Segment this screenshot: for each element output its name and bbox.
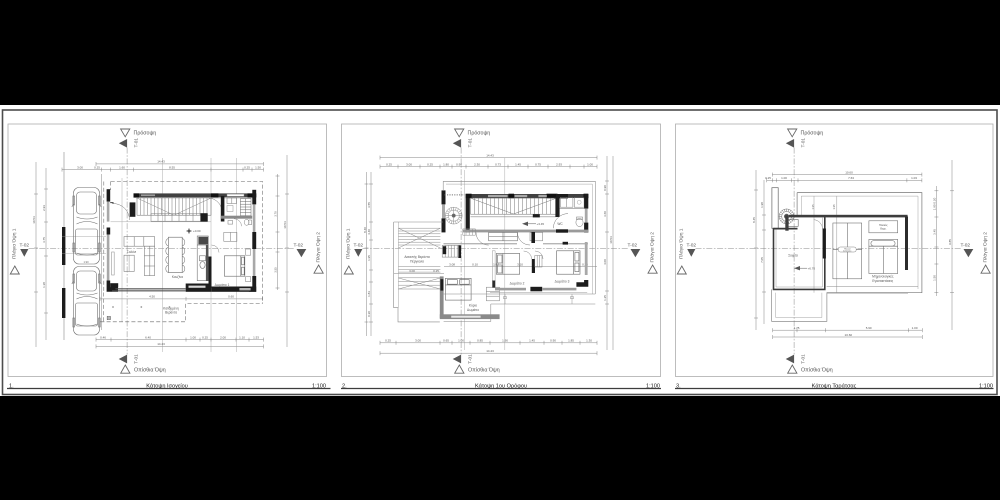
svg-text:0.60: 0.60 bbox=[228, 295, 234, 299]
svg-text:0.90: 0.90 bbox=[456, 162, 462, 166]
svg-text:Δωμάτιο 2: Δωμάτιο 2 bbox=[510, 281, 525, 285]
svg-text:1.10: 1.10 bbox=[239, 335, 245, 339]
svg-text:Δωμάτιο 3: Δωμάτιο 3 bbox=[555, 280, 570, 284]
svg-text:3.08: 3.08 bbox=[449, 262, 455, 266]
svg-text:1.38: 1.38 bbox=[42, 282, 46, 288]
svg-text:0.25: 0.25 bbox=[386, 162, 392, 166]
svg-text:1.90: 1.90 bbox=[83, 260, 89, 264]
svg-text:0.65: 0.65 bbox=[443, 339, 449, 343]
svg-text:1.00: 1.00 bbox=[781, 176, 787, 180]
svg-text:1.35: 1.35 bbox=[811, 204, 815, 210]
svg-text:Συλλέκτες: Συλλέκτες bbox=[843, 250, 851, 253]
svg-text:2.30: 2.30 bbox=[474, 162, 480, 166]
svg-text:7.63: 7.63 bbox=[848, 176, 854, 180]
svg-text:8.55: 8.55 bbox=[169, 165, 175, 169]
svg-text:0.85: 0.85 bbox=[477, 339, 483, 343]
svg-text:4.50: 4.50 bbox=[149, 295, 155, 299]
svg-text:0.10: 0.10 bbox=[472, 262, 478, 266]
svg-text:4.00: 4.00 bbox=[603, 259, 607, 265]
svg-text:0.25: 0.25 bbox=[385, 339, 391, 343]
svg-text:Βεράντα: Βεράντα bbox=[165, 311, 177, 315]
svg-text:0.90: 0.90 bbox=[603, 185, 607, 191]
svg-text:14.43: 14.43 bbox=[157, 160, 165, 164]
svg-text:Κουζίνα: Κουζίνα bbox=[172, 275, 183, 279]
svg-text:7.05: 7.05 bbox=[760, 257, 764, 263]
svg-text:3.55: 3.55 bbox=[367, 202, 371, 208]
svg-text:1.00: 1.00 bbox=[587, 162, 593, 166]
svg-text:1.90: 1.90 bbox=[502, 339, 508, 343]
svg-text:1.75: 1.75 bbox=[794, 326, 800, 330]
svg-text:1.98: 1.98 bbox=[760, 202, 764, 208]
svg-text:1.95: 1.95 bbox=[367, 255, 371, 261]
svg-text:9.85: 9.85 bbox=[948, 239, 952, 245]
svg-text:1.45: 1.45 bbox=[515, 162, 521, 166]
svg-text:0.25: 0.25 bbox=[765, 176, 771, 180]
svg-text:3.10: 3.10 bbox=[517, 262, 523, 266]
svg-text:1.50: 1.50 bbox=[932, 275, 936, 281]
svg-text:3.00: 3.00 bbox=[406, 162, 412, 166]
svg-text:Θερμ.: Θερμ. bbox=[880, 227, 887, 230]
svg-text:1.03: 1.03 bbox=[911, 176, 917, 180]
svg-text:0.25: 0.25 bbox=[94, 165, 100, 169]
svg-text:0.75: 0.75 bbox=[535, 162, 541, 166]
svg-text:3.00: 3.00 bbox=[77, 165, 83, 169]
svg-text:5.90: 5.90 bbox=[866, 326, 872, 330]
svg-text:Εγκαταστάσεις: Εγκαταστάσεις bbox=[872, 279, 893, 283]
svg-text:1.30: 1.30 bbox=[586, 339, 592, 343]
svg-text:0.25: 0.25 bbox=[433, 269, 439, 273]
svg-text:10.53: 10.53 bbox=[32, 216, 36, 224]
svg-text:0.46: 0.46 bbox=[100, 335, 106, 339]
svg-text:1.85: 1.85 bbox=[568, 339, 574, 343]
svg-text:0.25: 0.25 bbox=[202, 335, 208, 339]
svg-text:1.00: 1.00 bbox=[912, 326, 918, 330]
svg-text:2.93: 2.93 bbox=[42, 205, 46, 211]
svg-text:1.80: 1.80 bbox=[443, 162, 449, 166]
svg-text:3.70: 3.70 bbox=[274, 211, 278, 217]
svg-text:6.40: 6.40 bbox=[145, 335, 151, 339]
svg-text:WC: WC bbox=[557, 222, 563, 226]
svg-text:1.35: 1.35 bbox=[832, 204, 836, 210]
svg-text:0.30: 0.30 bbox=[367, 311, 371, 317]
svg-text:2.00: 2.00 bbox=[220, 335, 226, 339]
svg-text:3.75: 3.75 bbox=[42, 237, 46, 243]
svg-text:2.93: 2.93 bbox=[556, 162, 562, 166]
svg-text:1.25: 1.25 bbox=[603, 295, 607, 301]
svg-text:Σαλόνι: Σαλόνι bbox=[127, 250, 137, 254]
svg-text:10.60: 10.60 bbox=[845, 333, 853, 337]
svg-text:+3.45: +3.45 bbox=[537, 222, 545, 226]
svg-text:8.40: 8.40 bbox=[363, 227, 367, 233]
svg-text:10.53: 10.53 bbox=[609, 236, 613, 244]
svg-text:14.43: 14.43 bbox=[486, 153, 494, 157]
svg-text:Σοφίτα: Σοφίτα bbox=[788, 254, 798, 258]
svg-text:1.60: 1.60 bbox=[119, 165, 125, 169]
svg-text:1.53: 1.53 bbox=[253, 335, 259, 339]
svg-text:10.53: 10.53 bbox=[283, 221, 287, 229]
svg-text:3.55: 3.55 bbox=[274, 267, 278, 273]
svg-text:Δωμάτιο: Δωμάτιο bbox=[467, 308, 479, 312]
svg-text:0.90: 0.90 bbox=[550, 339, 556, 343]
svg-text:0.25: 0.25 bbox=[244, 165, 250, 169]
svg-text:1.00: 1.00 bbox=[458, 339, 464, 343]
svg-text:0.25: 0.25 bbox=[427, 162, 433, 166]
svg-text:1.45: 1.45 bbox=[529, 339, 535, 343]
svg-text:3.00: 3.00 bbox=[415, 339, 421, 343]
svg-text:1.83: 1.83 bbox=[367, 291, 371, 297]
svg-text:Δωμάτιο 1: Δωμάτιο 1 bbox=[215, 283, 230, 287]
svg-text:14.43: 14.43 bbox=[486, 349, 494, 353]
svg-text:Πέργκολα: Πέργκολα bbox=[410, 259, 424, 263]
svg-text:3.60: 3.60 bbox=[603, 211, 607, 217]
svg-text:0.73: 0.73 bbox=[495, 162, 501, 166]
svg-text:3.45: 3.45 bbox=[932, 229, 936, 235]
svg-text:14.43: 14.43 bbox=[157, 342, 165, 346]
svg-text:+0.00: +0.00 bbox=[193, 229, 201, 233]
svg-text:1.90 0.20: 1.90 0.20 bbox=[932, 197, 936, 210]
svg-text:8.45: 8.45 bbox=[752, 217, 756, 223]
svg-text:10.60: 10.60 bbox=[845, 170, 853, 174]
svg-text:4.40: 4.40 bbox=[367, 229, 371, 235]
svg-text:3.00: 3.00 bbox=[409, 269, 415, 273]
svg-text:+6.70: +6.70 bbox=[808, 266, 816, 270]
svg-text:1.00: 1.00 bbox=[190, 335, 196, 339]
svg-text:1.50: 1.50 bbox=[255, 165, 261, 169]
